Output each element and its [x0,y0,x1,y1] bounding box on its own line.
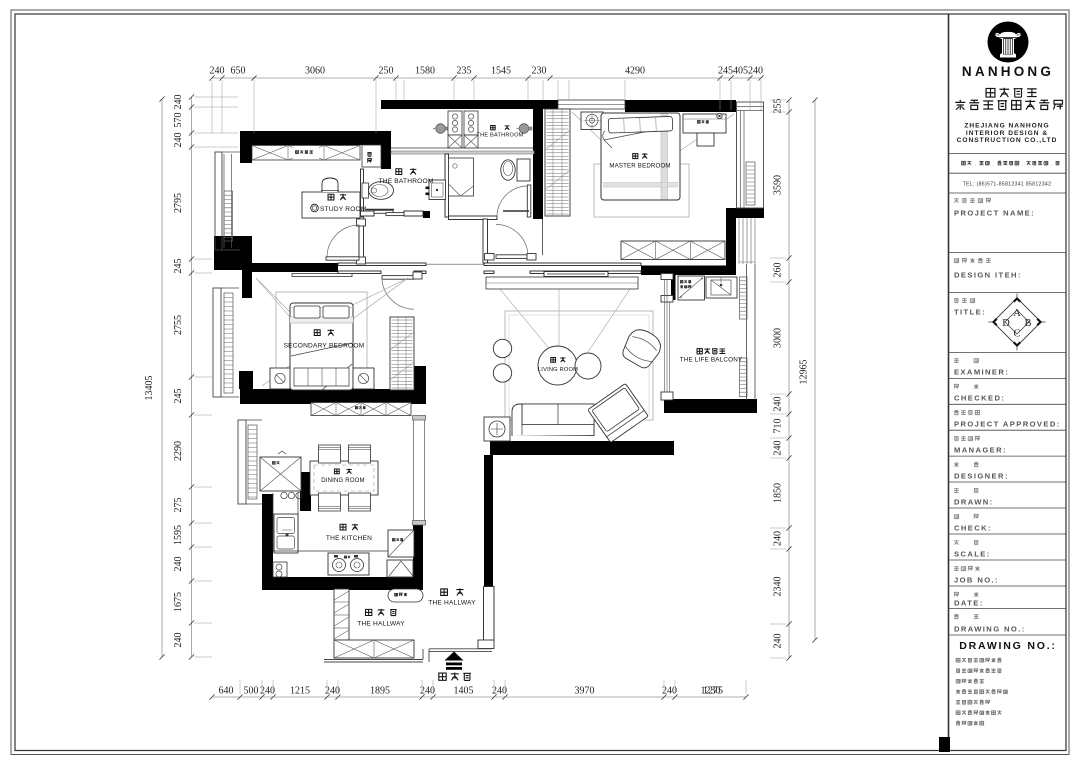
svg-text:DESIGNER:: DESIGNER: [954,472,1009,481]
svg-text:3000: 3000 [773,328,784,348]
svg-text:DRAWN:: DRAWN: [954,498,994,507]
svg-text:240: 240 [748,66,763,77]
svg-text:B: B [1024,318,1031,329]
svg-text:275: 275 [173,498,184,513]
svg-text:2755: 2755 [173,315,184,335]
svg-text:.: . [1022,162,1023,167]
svg-text:DESIGN ITEH:: DESIGN ITEH: [954,271,1022,280]
svg-text:2340: 2340 [773,577,784,597]
svg-text:255: 255 [773,99,784,114]
svg-text:1675: 1675 [173,592,184,612]
svg-text:CHECK:: CHECK: [954,524,992,533]
svg-text:500: 500 [244,686,259,697]
svg-text:TEL: (86)571-85812341 858123: TEL: (86)571-85812341 85812342 [963,182,1052,188]
svg-text:570: 570 [173,113,184,128]
svg-text:C: C [1013,329,1020,340]
svg-text:1850: 1850 [773,483,784,503]
svg-text:THE HALLWAY: THE HALLWAY [357,621,405,628]
svg-text:DATE:: DATE: [954,599,984,608]
svg-text:12965: 12965 [799,360,810,385]
svg-text:THE KITCHEN: THE KITCHEN [326,535,372,542]
svg-text:240: 240 [773,531,784,546]
svg-text:230: 230 [532,66,547,77]
svg-text:TITLE:: TITLE: [954,308,986,317]
svg-text:3590: 3590 [773,175,784,195]
svg-text:THE BATHROOM: THE BATHROOM [378,178,433,185]
svg-text:DRAWING NO.:: DRAWING NO.: [959,640,1056,652]
svg-text:245: 245 [173,389,184,404]
svg-text:1405: 1405 [454,686,474,697]
svg-text:2290: 2290 [173,441,184,461]
svg-text:LIVING ROOM: LIVING ROOM [538,367,578,373]
svg-text:STUDY ROOM: STUDY ROOM [320,206,367,213]
svg-text:MANAGER:: MANAGER: [954,446,1007,455]
svg-text:4290: 4290 [625,66,645,77]
svg-text:PROJECT APPROVED:: PROJECT APPROVED: [954,420,1061,429]
svg-text:1545: 1545 [491,66,511,77]
svg-text:CHECKED:: CHECKED: [954,394,1005,403]
svg-text:240: 240 [773,634,784,649]
svg-text:ZHEJIANG NANHONG: ZHEJIANG NANHONG [964,123,1049,130]
svg-text:240: 240 [173,557,184,572]
svg-text:THE BATHROOM: THE BATHROOM [476,133,523,139]
svg-text:260: 260 [773,263,784,278]
svg-text:JOB NO.:: JOB NO.: [954,576,999,585]
svg-text:240: 240 [173,633,184,648]
svg-text:710: 710 [773,419,784,434]
svg-text:1275: 1275 [703,686,723,697]
svg-text:250: 250 [379,66,394,77]
svg-text:1595: 1595 [173,525,184,545]
svg-text:2795: 2795 [173,193,184,213]
svg-text:240: 240 [173,95,184,110]
svg-text:DRAWING NO.:: DRAWING NO.: [954,625,1026,634]
svg-text:1215: 1215 [290,686,310,697]
svg-text:SCALE:: SCALE: [954,550,991,559]
svg-text:240: 240 [773,441,784,456]
svg-text:D: D [1002,318,1010,329]
svg-text:240: 240 [173,133,184,148]
svg-text:EXAMINER:: EXAMINER: [954,368,1009,377]
svg-text:.: . [993,162,994,167]
svg-text:A: A [1013,308,1021,319]
svg-text:245: 245 [173,259,184,274]
svg-text:.: . [1051,162,1052,167]
svg-text:640: 640 [219,686,234,697]
svg-text:THE HALLWAY: THE HALLWAY [428,600,476,607]
svg-text:SECONDARY BEDROOM: SECONDARY BEDROOM [284,343,365,350]
svg-text:235: 235 [457,66,472,77]
svg-text:245: 245 [718,66,733,77]
svg-text:CONSTRUCTION CO.,LTD: CONSTRUCTION CO.,LTD [957,137,1058,144]
svg-text:MASTER BEDROOM: MASTER BEDROOM [609,163,670,170]
svg-text:240: 240 [773,397,784,412]
svg-text:405: 405 [733,66,748,77]
svg-text:1895: 1895 [370,686,390,697]
svg-text:INTERIOR DESIGN &: INTERIOR DESIGN & [966,130,1048,137]
svg-text:240: 240 [210,66,225,77]
svg-text:NANHONG: NANHONG [962,64,1054,79]
svg-text:650: 650 [231,66,246,77]
svg-text:.: . [975,162,976,167]
svg-text:3970: 3970 [575,686,595,697]
svg-text:DINING ROOM: DINING ROOM [321,478,365,484]
svg-text:3060: 3060 [305,66,325,77]
svg-text:THE LIFE BALCONY: THE LIFE BALCONY [680,357,743,364]
svg-text:13405: 13405 [144,376,155,401]
svg-text:PROJECT NAME:: PROJECT NAME: [954,209,1035,218]
svg-text:1580: 1580 [415,66,435,77]
